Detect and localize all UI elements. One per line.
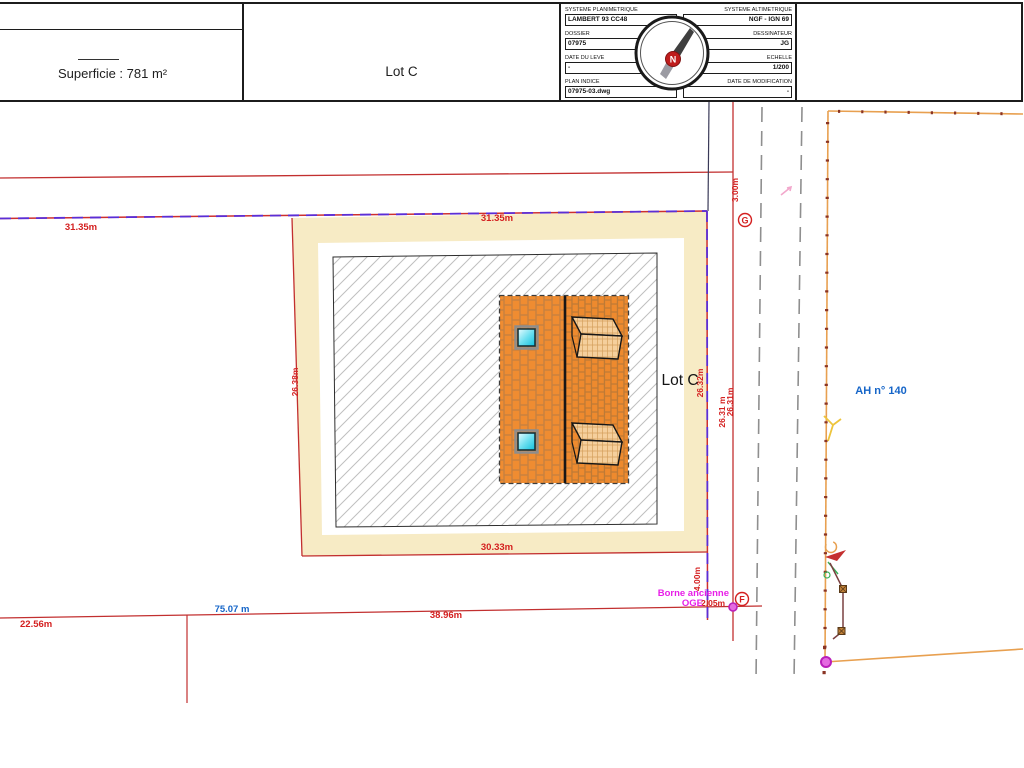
dim-south-mid: 38.96m	[430, 610, 462, 621]
pink-mark	[781, 187, 791, 195]
lot-east-boundary-dashed	[707, 211, 708, 620]
borne-marker	[729, 603, 737, 611]
sheet-title-strip: Superficie : 781 m² Lot C SYSTEME PLANIM…	[0, 2, 1023, 102]
right-title-panel	[797, 4, 1021, 100]
lot-c-label: Lot C	[661, 372, 698, 389]
south-road-edge	[0, 606, 762, 618]
borne-marker	[821, 657, 831, 667]
sheet-lot-label: Lot C	[244, 64, 559, 79]
point-f-label: F	[739, 595, 745, 605]
skylight-icon	[516, 327, 538, 349]
info-table: SYSTEME PLANIMETRIQUE LAMBERT 93 CC48 SY…	[561, 4, 797, 100]
point-g-label: G	[741, 216, 748, 226]
survey-plan-sheet: G F 31.35m 31.35m 26.38m 26.32m 26.31 m …	[0, 0, 1024, 768]
north-arrow-icon: N	[632, 13, 712, 93]
dim-south-lot: 30.33m	[481, 542, 513, 553]
center-title-panel: Lot C	[244, 4, 561, 100]
compass-n-letter: N	[670, 55, 677, 65]
building-roof	[500, 296, 629, 484]
borne-label-line2: OGE	[682, 598, 703, 609]
roof-left-slope	[500, 296, 564, 483]
plot-plan-drawing: G F 31.35m 31.35m 26.38m 26.32m 26.31 m …	[0, 0, 1024, 768]
dim-south-west: 22.56m	[20, 619, 52, 630]
north-road-edge	[0, 172, 733, 178]
left-title-panel: Superficie : 781 m²	[0, 4, 244, 100]
superficie-label: Superficie : 781 m²	[58, 66, 167, 81]
dim-top-west: 31.35m	[65, 222, 97, 233]
dim-borne-offset: 2.05m	[701, 598, 726, 608]
survey-point-f: F	[736, 593, 749, 606]
dim-west-side: 26.38m	[290, 367, 300, 396]
superficie-overline	[78, 59, 119, 60]
road-axis-lines	[756, 107, 802, 682]
parcel-ref-label: AH n° 140	[855, 385, 906, 397]
dim-top-lot: 31.35m	[481, 213, 513, 224]
dim-road-length: 75.07 m	[215, 604, 250, 615]
east-boundary-upper	[708, 102, 709, 211]
dim-east-outer-b: 26.31m	[725, 387, 735, 416]
left-panel-top-band	[0, 4, 242, 30]
survey-point-g: G	[739, 214, 752, 227]
dim-strip-north: 3.00m	[730, 178, 740, 203]
skylight-icon	[516, 431, 538, 453]
